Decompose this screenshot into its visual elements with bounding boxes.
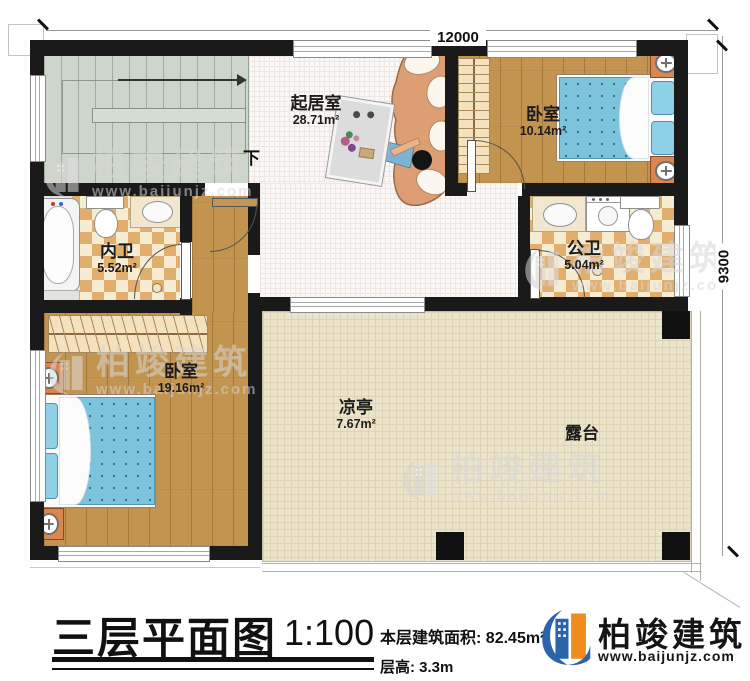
terrace-pillar [662, 532, 690, 560]
wall [262, 297, 290, 311]
room-name: 公卫 [564, 240, 604, 258]
sink-basin [543, 203, 577, 227]
bed [556, 74, 680, 162]
dimension-height-value: 9300 [716, 244, 733, 290]
floor-plan-canvas: 12000 9300 下 起居室 28.71m² 卧室 10.14m² 内卫 5… [0, 0, 750, 681]
room-area: 5.52m² [97, 261, 137, 275]
person-head [412, 150, 432, 170]
room-label-bath-public: 公卫 5.04m² [564, 240, 604, 272]
wall [518, 196, 530, 310]
pillow [651, 81, 675, 115]
dimension-line-top [46, 30, 718, 31]
room-area: 19.16m² [158, 381, 205, 395]
brand-website: www.baijunjz.com [598, 648, 735, 664]
room-area: 5.04m² [564, 258, 604, 272]
stair-arrow-head-icon [237, 74, 247, 86]
room-label-bath-inner: 内卫 5.52m² [97, 243, 137, 275]
door-leaf [181, 242, 191, 300]
title-underline [52, 657, 374, 662]
window [58, 546, 210, 562]
room-label-pavilion: 凉亭 7.67m² [336, 399, 376, 431]
floor-height-value: 3.3m [419, 659, 453, 676]
sink-counter [532, 196, 586, 232]
window [487, 40, 637, 58]
wall [30, 300, 183, 313]
washer-drum [598, 206, 618, 226]
railing-line [262, 563, 702, 564]
sink-counter [130, 196, 182, 228]
railing-line [700, 311, 701, 581]
terrace-pillar [662, 311, 690, 339]
extension-box [686, 34, 718, 74]
room-name: 凉亭 [336, 399, 376, 417]
stair-direction-arrow [118, 79, 238, 81]
window [674, 225, 690, 297]
floor-height-text: 层高: 3.3m [380, 656, 453, 677]
toilet-tank [86, 196, 124, 209]
room-label-bedroom-left: 卧室 19.16m² [158, 363, 205, 395]
terrace-pillar [436, 532, 464, 560]
window [30, 350, 46, 502]
wall [248, 297, 262, 560]
plan-scale: 1:100 [284, 612, 374, 654]
bed [32, 394, 156, 508]
pillow [651, 121, 675, 155]
wall [30, 183, 205, 196]
sink-basin [142, 201, 173, 223]
title-underline [52, 668, 374, 670]
washer-button [592, 198, 595, 201]
wardrobe [48, 315, 208, 353]
toilet-bowl [94, 209, 118, 238]
eave-diagonal-line [684, 572, 741, 608]
floor-area-label: 本层建筑面积: [380, 630, 481, 647]
extension-line [30, 567, 260, 568]
blanket-fold [619, 77, 649, 159]
floor-height-label: 层高: [380, 659, 415, 676]
terrace-floor [262, 311, 692, 562]
wall [30, 40, 293, 56]
faucet-icon [59, 202, 63, 206]
brand-logo-icon [538, 606, 592, 668]
room-label-terrace: 露台 [565, 425, 599, 443]
stairwell-floor [44, 56, 249, 183]
railing-line [691, 311, 692, 573]
room-label-living: 起居室 28.71m² [291, 95, 342, 127]
room-name: 起居室 [291, 95, 342, 113]
flower [347, 143, 356, 152]
dimension-line-right [722, 36, 723, 556]
cup [353, 111, 361, 119]
tray [358, 147, 374, 159]
washer-button [599, 198, 602, 201]
stair-down-label: 下 [243, 144, 260, 169]
room-name: 卧室 [520, 106, 567, 124]
window [293, 40, 432, 58]
dimension-tick [727, 545, 739, 557]
bathtub-basin [42, 206, 74, 284]
room-area: 10.14m² [520, 124, 567, 138]
room-name: 露台 [565, 425, 599, 443]
window [30, 75, 46, 162]
wall [522, 183, 688, 196]
cup [367, 111, 375, 119]
stair-handrail [92, 108, 246, 123]
flower [353, 135, 360, 142]
dimension-tick [707, 18, 719, 30]
room-name: 卧室 [158, 363, 205, 381]
faucet-icon [51, 202, 55, 206]
flower-leaf [345, 131, 353, 139]
floor-area-text: 本层建筑面积: 82.45m² [380, 624, 545, 648]
toilet-bowl [628, 209, 654, 240]
room-name: 内卫 [97, 243, 137, 261]
wall [180, 196, 192, 242]
room-label-bedroom-top: 卧室 10.14m² [520, 106, 567, 138]
dimension-width-value: 12000 [430, 29, 486, 46]
toilet-tank [620, 196, 660, 209]
railing-line [262, 571, 702, 572]
room-area: 7.67m² [336, 417, 376, 431]
wall [445, 40, 458, 196]
sliding-door [290, 297, 425, 313]
blanket-fold [59, 397, 91, 505]
floor-area-value: 82.45m² [486, 630, 546, 647]
wall [423, 297, 688, 311]
room-area: 28.71m² [291, 113, 342, 127]
washer-button [606, 198, 609, 201]
